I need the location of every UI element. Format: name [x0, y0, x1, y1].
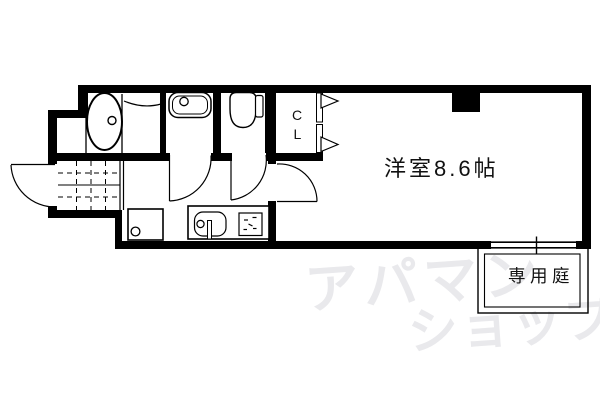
stove — [239, 213, 262, 236]
closet-folding-door — [317, 93, 339, 153]
bathtub-drain-icon — [108, 117, 116, 125]
top-wall — [78, 85, 591, 93]
toilet-bowl — [230, 93, 256, 128]
watermark: アパマン ショップ — [303, 239, 600, 367]
toilet-door-arc — [231, 155, 266, 200]
washroom-toilet-divider — [213, 93, 221, 153]
toilet-tank — [256, 96, 264, 118]
garden-label: 専用庭 — [508, 266, 574, 286]
washing-machine-drain-icon — [131, 227, 140, 236]
bottom-wall — [115, 241, 491, 249]
step-down-wall — [115, 210, 122, 249]
mainroom-door-arc — [277, 164, 317, 202]
right-wall — [582, 93, 591, 248]
washroom-door-arc — [170, 156, 212, 202]
genkan-tiles — [58, 161, 120, 210]
mainroom-left-wall-upper — [268, 153, 276, 164]
kitchen-faucet-icon — [197, 220, 204, 227]
closet-door-triangle-top — [321, 94, 338, 108]
bathtub — [87, 93, 122, 150]
entrance-door-arc — [11, 165, 55, 207]
floorplan-drawing: アパマン ショップ — [0, 0, 600, 400]
pillar — [452, 92, 480, 112]
bath-row-bottom-wall-2 — [211, 153, 232, 161]
kitchen-faucet-pipe — [208, 221, 212, 240]
main-room-label: 洋室8.6帖 — [384, 156, 499, 181]
toilet-closet-wall — [265, 93, 276, 153]
closet-door-triangle-bottom — [321, 137, 338, 152]
left-wall-low — [48, 206, 57, 218]
bath-row-bottom-wall-1 — [48, 153, 170, 161]
washbasin-faucet-icon — [180, 97, 188, 105]
bath-washroom-divider — [160, 93, 166, 153]
closet-label-l: L — [294, 126, 302, 142]
closet-label-c: C — [292, 107, 302, 123]
genkan-bottom-wall — [48, 210, 122, 218]
bath-curtain-curve — [124, 101, 161, 106]
left-wall-upper — [78, 85, 88, 111]
washbasin-bowl — [173, 96, 208, 114]
floorplan-canvas: アパマン ショップ — [0, 0, 600, 400]
